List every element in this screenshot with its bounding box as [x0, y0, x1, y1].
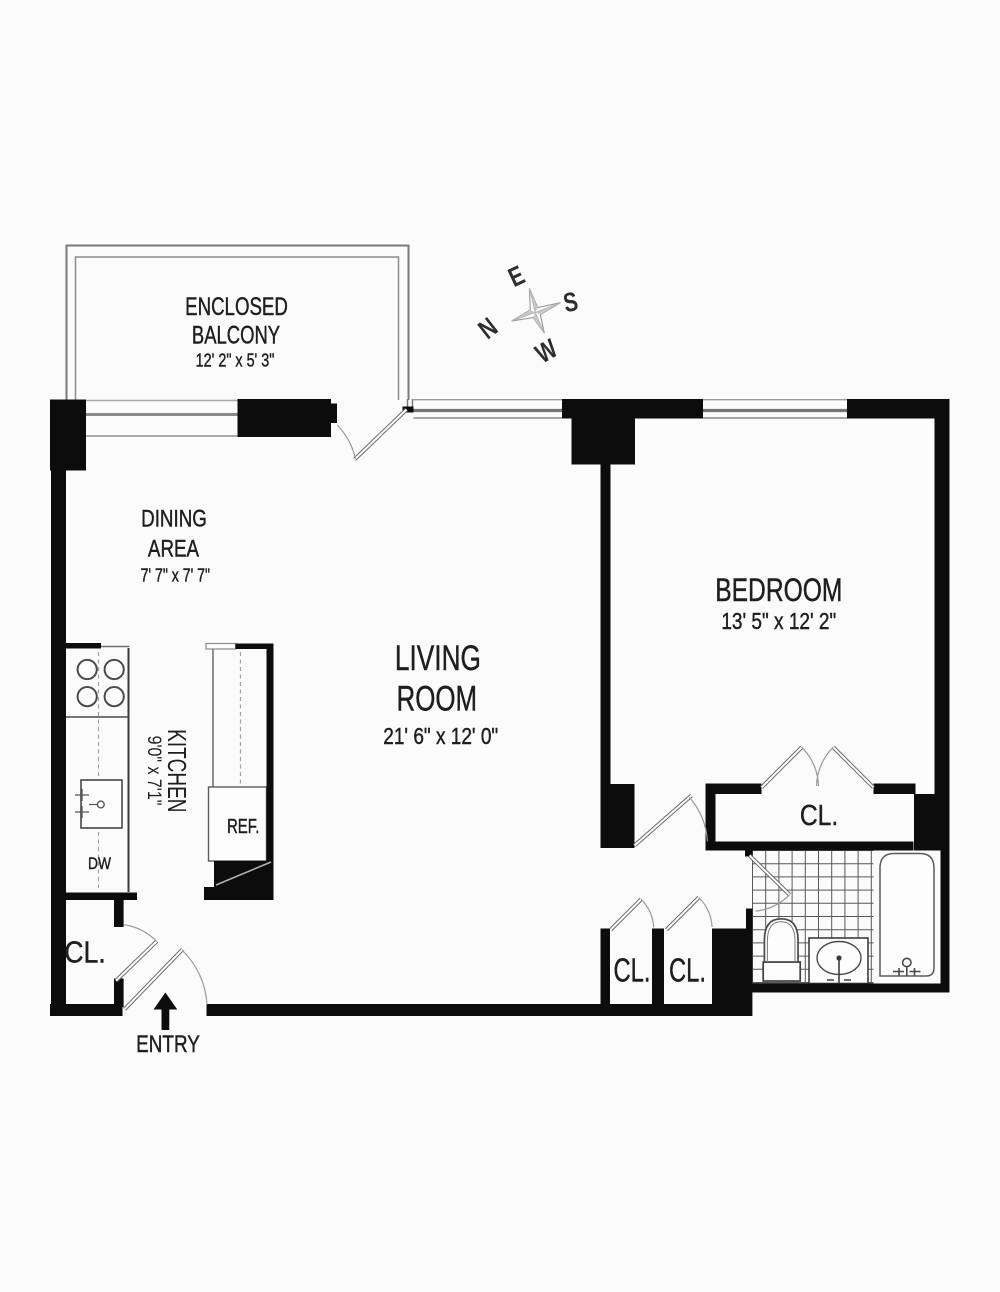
svg-text:CL.: CL. [614, 953, 651, 990]
svg-text:CL.: CL. [800, 799, 838, 831]
svg-text:REF.: REF. [227, 815, 259, 838]
svg-text:CL.: CL. [669, 953, 706, 990]
svg-text:13' 5" x 12' 2": 13' 5" x 12' 2" [721, 608, 836, 634]
svg-text:DW: DW [88, 855, 111, 874]
svg-text:ENTRY: ENTRY [136, 1030, 200, 1058]
svg-text:DINING: DINING [141, 504, 207, 532]
svg-text:LIVING: LIVING [395, 638, 481, 678]
svg-text:12' 2" x 5' 3": 12' 2" x 5' 3" [196, 350, 275, 371]
svg-text:ENCLOSED: ENCLOSED [185, 292, 288, 320]
svg-text:21' 6" x 12' 0": 21' 6" x 12' 0" [383, 723, 498, 749]
svg-text:7' 7" x 7' 7": 7' 7" x 7' 7" [141, 566, 211, 586]
svg-text:ROOM: ROOM [397, 679, 478, 719]
svg-text:BEDROOM: BEDROOM [715, 573, 842, 609]
svg-text:BALCONY: BALCONY [192, 321, 281, 349]
svg-text:KITCHEN: KITCHEN [162, 729, 192, 812]
svg-text:CL.: CL. [64, 936, 105, 970]
svg-text:9'0" x 7'1": 9'0" x 7'1" [144, 736, 166, 806]
svg-text:AREA: AREA [148, 534, 200, 562]
